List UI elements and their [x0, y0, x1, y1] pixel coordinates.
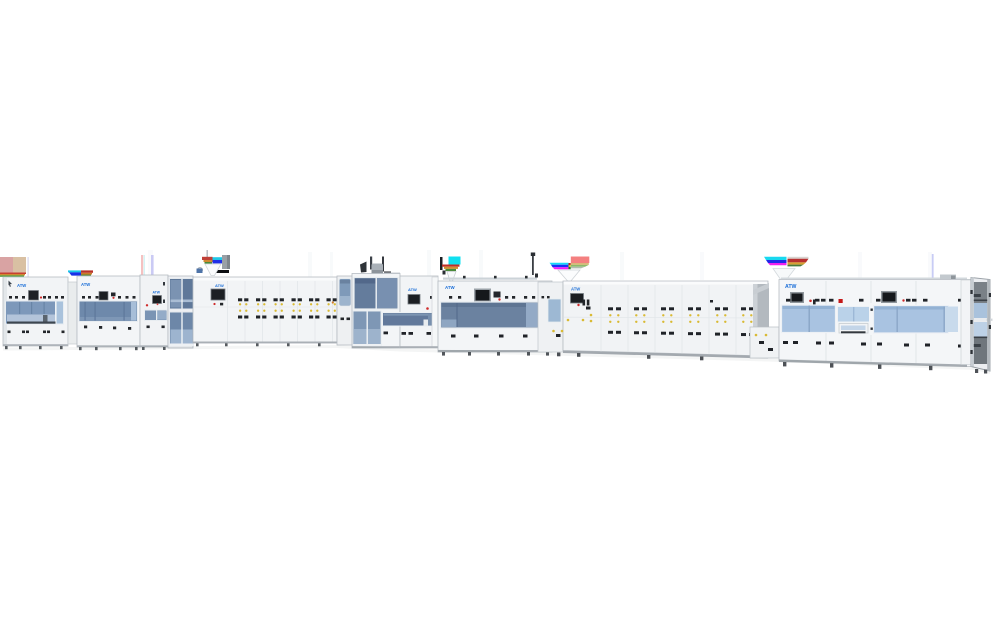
svg-text:ATW: ATW: [445, 285, 456, 290]
svg-text:ATW: ATW: [17, 283, 26, 288]
svg-text:ATW: ATW: [571, 287, 580, 292]
svg-text:ATW: ATW: [785, 284, 797, 290]
svg-text:ATW: ATW: [81, 282, 90, 287]
svg-text:ATW: ATW: [215, 283, 224, 288]
svg-text:ATW: ATW: [153, 291, 161, 295]
svg-text:ATW: ATW: [408, 287, 417, 292]
